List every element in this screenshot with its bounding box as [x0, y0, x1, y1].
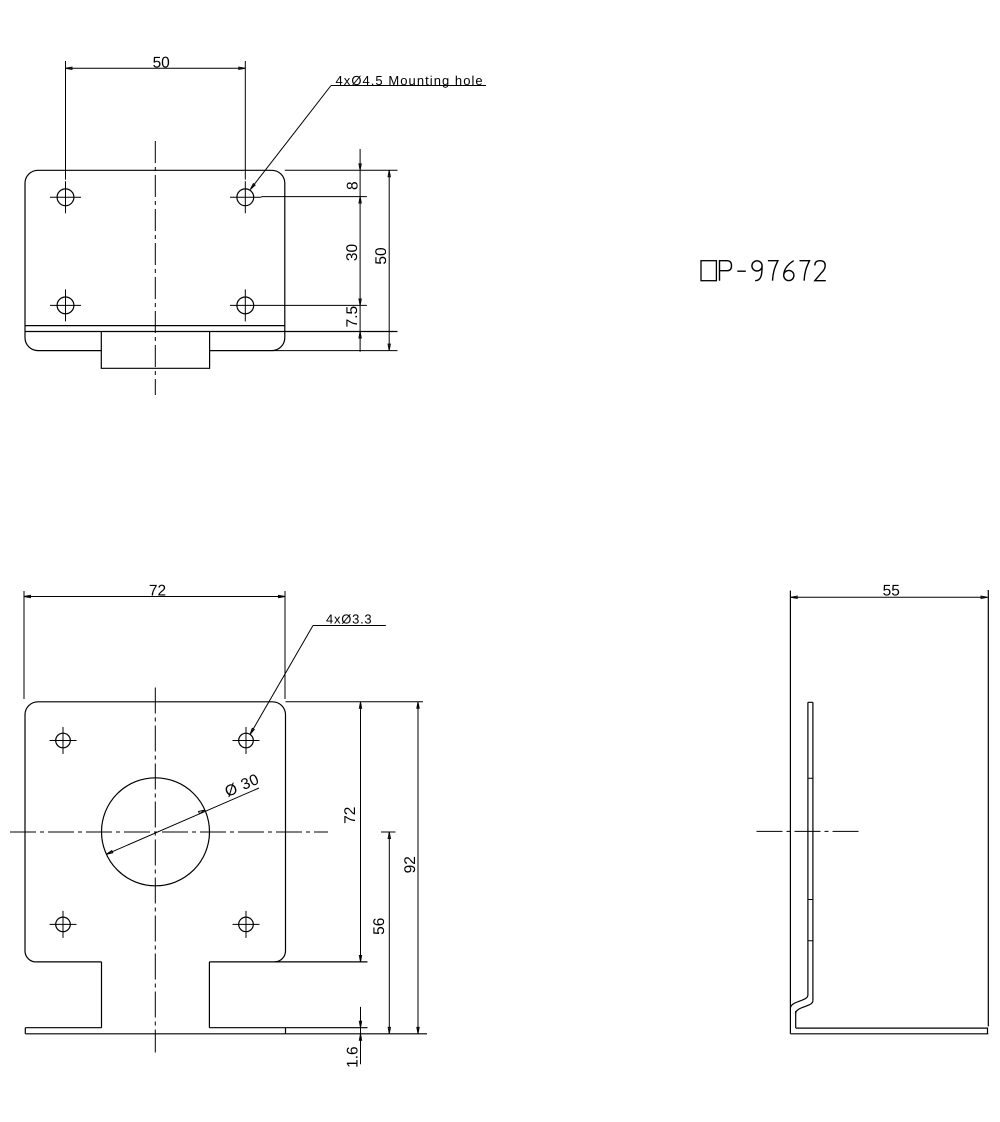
svg-text:8: 8: [345, 181, 362, 190]
svg-text:56: 56: [371, 918, 388, 935]
svg-text:1.6: 1.6: [345, 1046, 362, 1068]
svg-text:92: 92: [402, 856, 419, 873]
svg-text:4xØ3.3: 4xØ3.3: [326, 612, 372, 627]
svg-text:Ø 30: Ø 30: [222, 771, 261, 801]
svg-text:4xØ4.5 Mounting hole: 4xØ4.5 Mounting hole: [336, 73, 484, 88]
svg-text:72: 72: [149, 583, 166, 600]
svg-text:55: 55: [883, 583, 900, 600]
svg-text:50: 50: [373, 247, 390, 265]
svg-text:7.5: 7.5: [344, 306, 361, 328]
svg-text:30: 30: [344, 244, 361, 262]
svg-text:72: 72: [342, 807, 359, 824]
svg-text:50: 50: [153, 54, 171, 71]
